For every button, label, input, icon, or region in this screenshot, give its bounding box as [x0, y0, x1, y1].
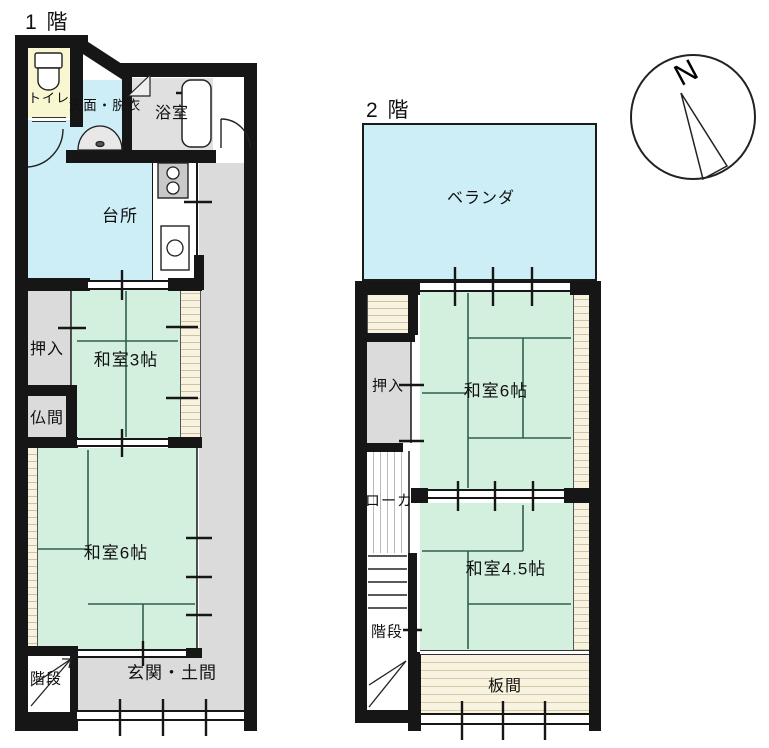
room-label-closet-1f: 押入 [30, 335, 64, 359]
wall-segment [564, 488, 591, 503]
wall-segment [186, 648, 202, 658]
room-label-stairs-2f: 階段 [371, 621, 403, 642]
floor2-title: 2 階 [366, 94, 411, 124]
wall-segment [15, 35, 28, 731]
room-label-closet-2f: 押入 [372, 375, 404, 396]
room-label-veranda: ベランダ [447, 184, 515, 208]
kitchen-counter [152, 158, 198, 291]
room-label-tatami3: 和室3帖 [94, 346, 158, 371]
room-toilet [28, 48, 70, 118]
compass-needle [681, 93, 727, 179]
wall-segment [70, 646, 78, 712]
floor1-title: 1 階 [25, 6, 70, 36]
toilet-door-line [32, 117, 66, 122]
wall-segment [408, 553, 417, 654]
itanoma-boundary-line [420, 650, 589, 655]
wall-segment [408, 283, 418, 335]
compass-north-label: N [669, 53, 704, 92]
sliding-door-band [88, 280, 168, 290]
stairs-direction-lines-2f [369, 661, 406, 707]
room-label-itanoma: 板間 [488, 672, 522, 696]
wall-segment [60, 437, 78, 448]
floorplan-canvas: N 1 階 2 階 トイレ 洗面・脱衣 浴室 台所 押入 和室3帖 仏間 和室6… [0, 0, 769, 748]
wall-segment [244, 63, 257, 731]
wall-segment [355, 333, 415, 342]
room-label-entrance: 玄関・土間 [127, 659, 217, 684]
room-label-tatami6-1f: 和室6帖 [84, 539, 148, 564]
compass-icon: N [631, 53, 755, 179]
room-label-toilet: トイレ [28, 88, 70, 107]
wall-segment [194, 255, 204, 290]
wall-segment [66, 150, 216, 163]
room-washroom [80, 80, 122, 152]
wall-segment [589, 281, 601, 731]
wall-segment [15, 278, 90, 291]
room-label-tatami6-2f: 和室6帖 [464, 377, 528, 402]
wall-segment [15, 646, 75, 656]
sliding-door-band [420, 281, 570, 292]
wall-segment [168, 437, 202, 448]
room-label-kitchen: 台所 [102, 202, 138, 227]
window-band [77, 710, 244, 721]
wall-segment [120, 63, 257, 77]
wall-segment [355, 443, 403, 452]
wall-segment [355, 710, 417, 723]
sliding-door-band [78, 649, 186, 658]
window-band [421, 713, 589, 725]
wall-segment [15, 712, 78, 731]
room-label-stairs-1f: 階段 [30, 668, 62, 689]
stairs-treads-2f [368, 556, 407, 608]
wall-segment [122, 77, 132, 152]
sliding-door-band [77, 438, 168, 447]
room-label-washroom: 洗面・脱衣 [69, 94, 142, 114]
sliding-door-band [428, 489, 564, 499]
room-label-butsuma: 仏間 [30, 404, 64, 428]
wall-segment [411, 488, 428, 503]
room-label-tatami45: 和室4.5帖 [466, 555, 547, 580]
room-label-bath: 浴室 [155, 99, 189, 123]
engawa-east-1f [180, 287, 201, 443]
room-label-hallway: ローカ [365, 490, 413, 511]
corridor-doma [199, 163, 244, 712]
